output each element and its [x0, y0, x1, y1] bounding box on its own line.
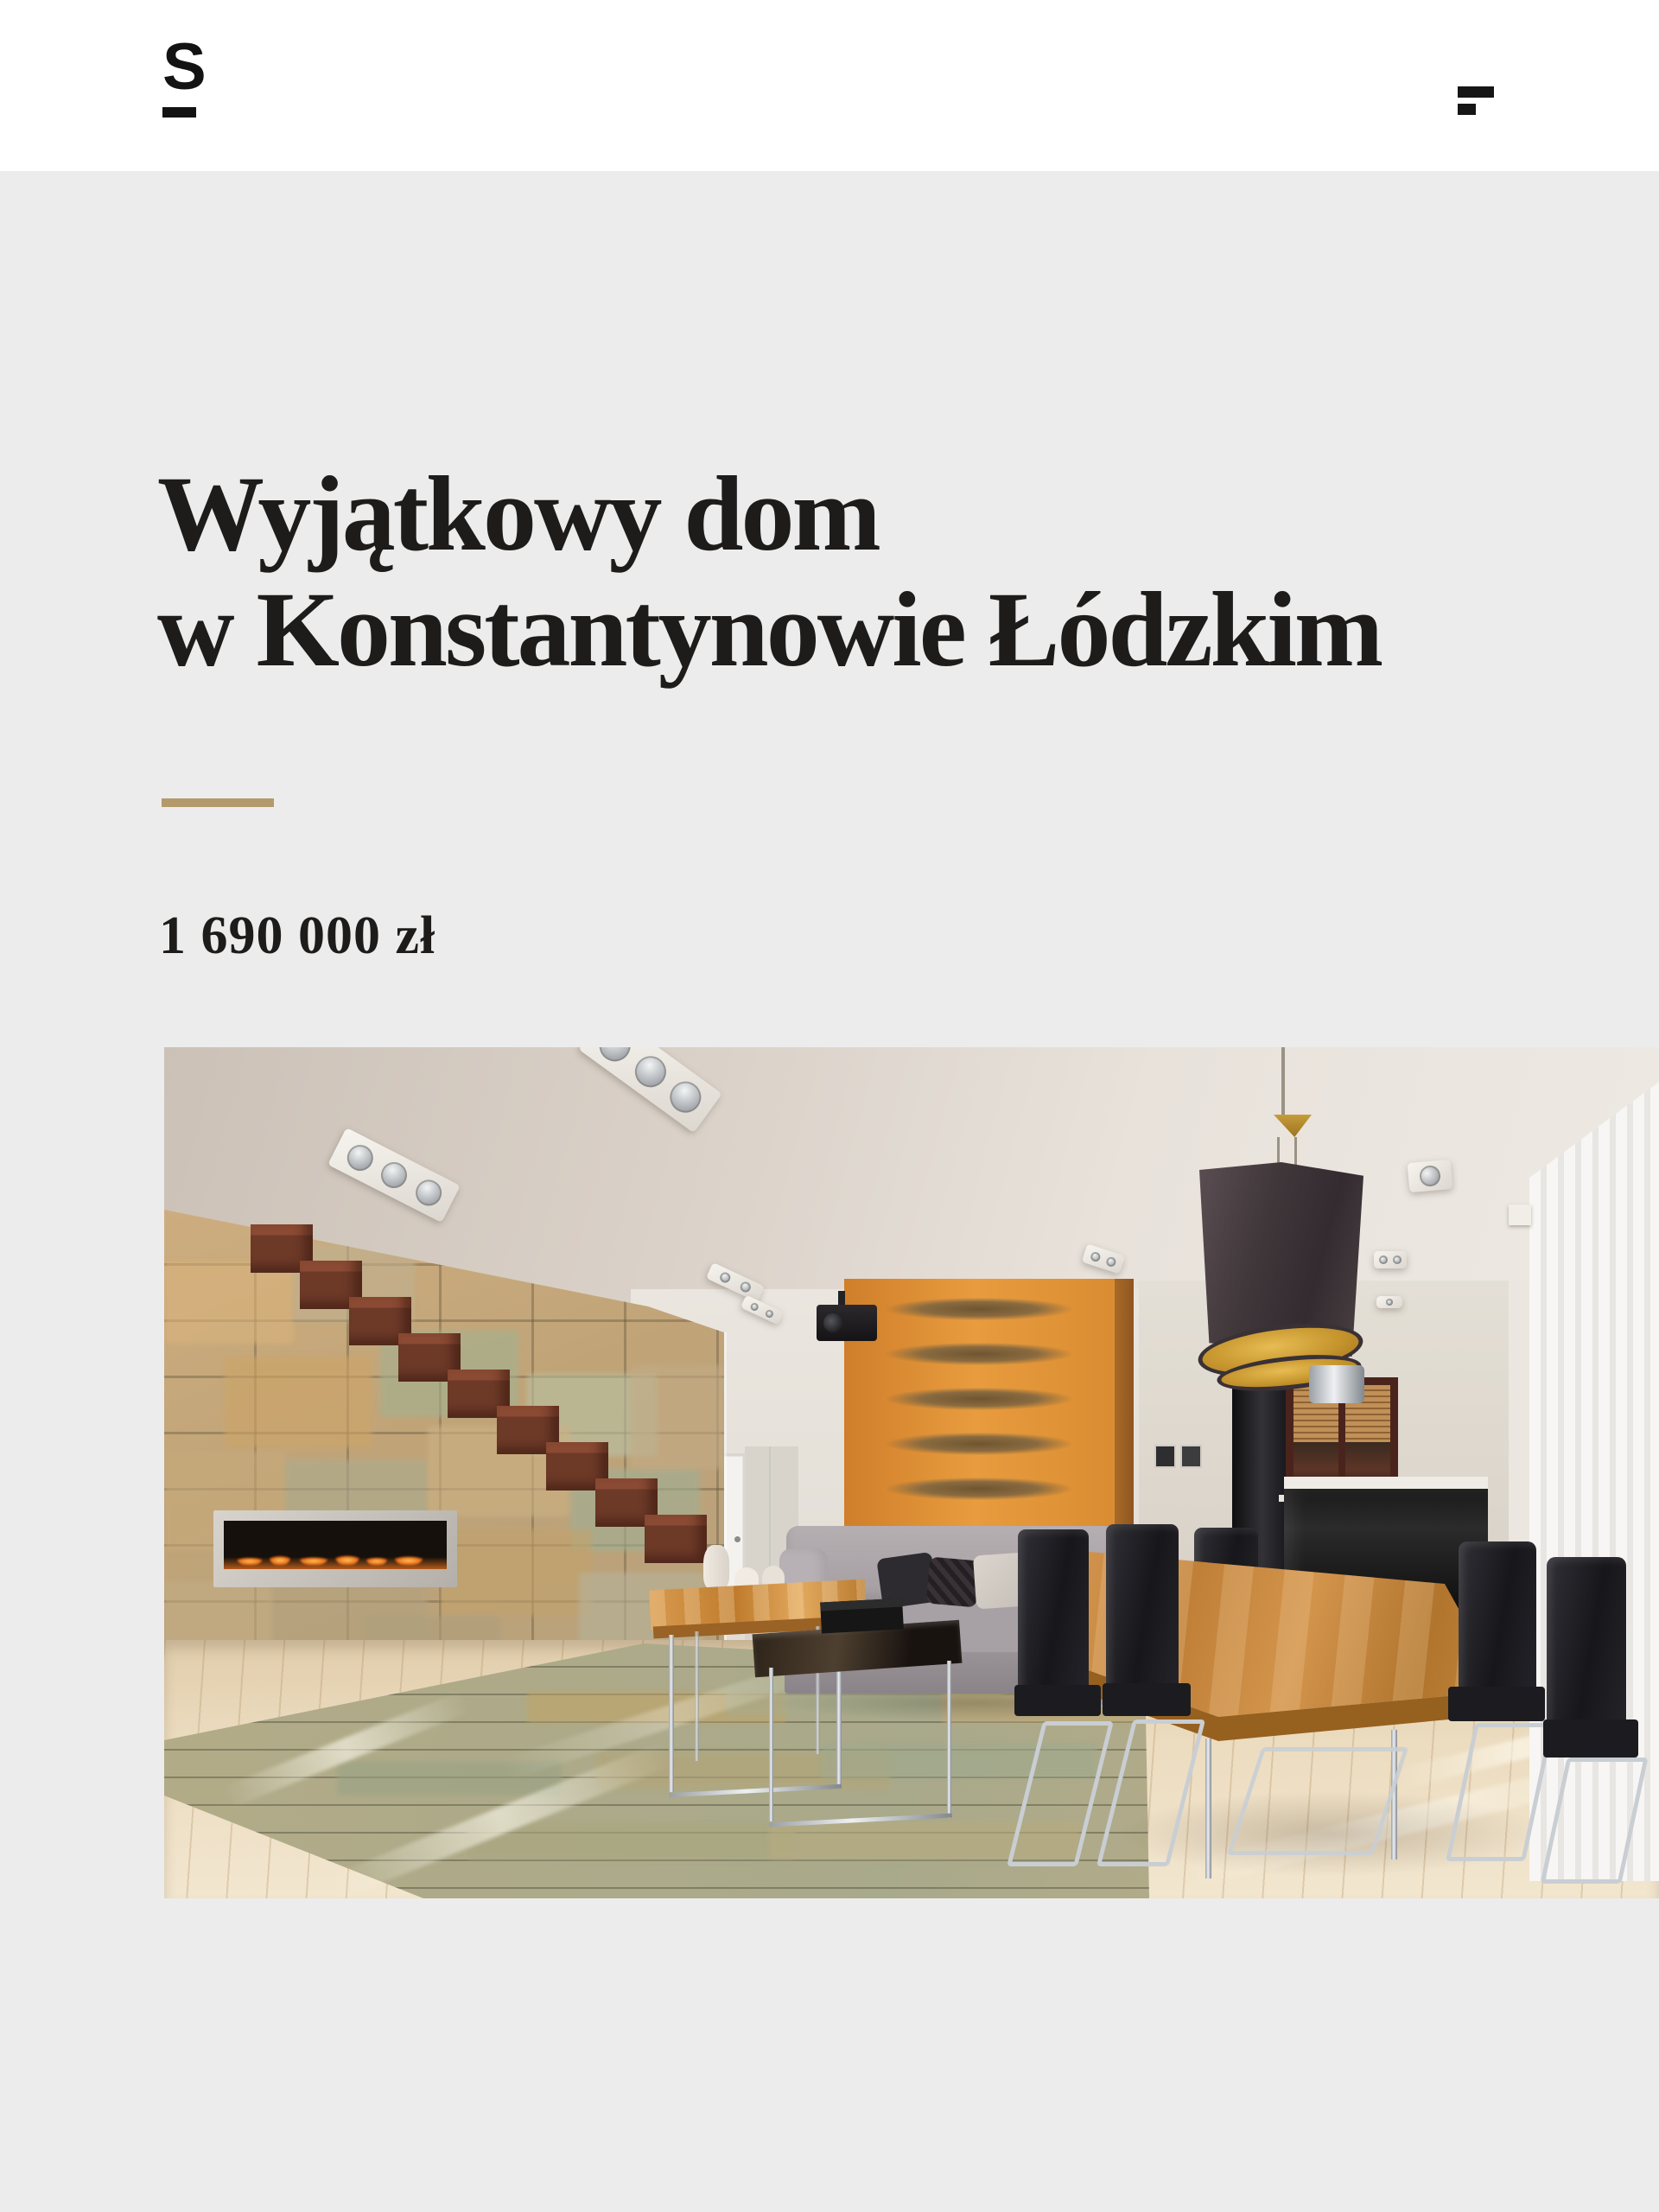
table-leg	[695, 1631, 699, 1761]
spotlight-bulb	[718, 1271, 732, 1285]
spotlight-bulb	[1393, 1255, 1402, 1264]
door-handle	[734, 1536, 741, 1542]
title-line-2: w Konstantynowie Łódzkim	[157, 572, 1381, 688]
pillow	[926, 1557, 980, 1608]
price-label: 1 690 000 zł	[159, 906, 435, 967]
stair-step	[645, 1515, 707, 1563]
dining-chair-back	[1018, 1529, 1089, 1689]
table-leg	[669, 1635, 674, 1792]
dining-chair-back	[1547, 1557, 1626, 1730]
table-leg	[1205, 1738, 1211, 1878]
ember-glow	[224, 1557, 447, 1569]
table-leg	[769, 1668, 773, 1821]
spotlight-bulb	[765, 1308, 775, 1319]
spotlight-bulb	[1419, 1165, 1441, 1187]
tissue-box	[820, 1599, 904, 1634]
lamp-cord	[1281, 1047, 1285, 1116]
slat-shape	[887, 1343, 1071, 1365]
stone-tile-patch	[164, 1262, 294, 1344]
spotlight-strip	[1082, 1243, 1126, 1274]
stone-tile-patch	[225, 1357, 372, 1447]
title-line-1: Wyjątkowy dom	[157, 456, 1381, 572]
spotlight-bulb	[410, 1175, 445, 1210]
table-leg	[947, 1661, 951, 1818]
light-switch	[1154, 1445, 1176, 1468]
spotlight-bulb	[1090, 1250, 1102, 1262]
accent-divider	[162, 798, 274, 807]
spotlight-bulb	[664, 1075, 707, 1118]
dining-chair-back	[1459, 1541, 1536, 1697]
logo-underline	[162, 107, 196, 118]
spotlight-bulb	[377, 1158, 411, 1192]
slat-shape	[887, 1433, 1071, 1455]
spotlight-strip	[327, 1128, 461, 1223]
slat-shape	[887, 1298, 1071, 1320]
slat-shape	[887, 1478, 1071, 1500]
dining-chair-seat	[1448, 1687, 1545, 1721]
spotlight-bulb	[342, 1141, 377, 1175]
spotlight-bulb	[739, 1281, 753, 1294]
dining-chair-seat	[1543, 1719, 1638, 1758]
page-title: Wyjątkowy dom w Konstantynowie Łódzkim	[157, 456, 1381, 688]
menu-bar-short	[1458, 104, 1476, 115]
spotlight-square	[1408, 1160, 1453, 1192]
dining-chair-seat	[1014, 1685, 1101, 1716]
spotlight-strip	[1374, 1251, 1407, 1268]
spotlight-bulb	[749, 1301, 760, 1312]
lamp-cord	[1277, 1137, 1280, 1166]
logo[interactable]: S	[162, 35, 207, 118]
property-photo[interactable]	[164, 1047, 1659, 1898]
spotlight-bulb	[1386, 1299, 1393, 1306]
dining-chair-back	[1106, 1524, 1179, 1688]
stone-tile-patch	[631, 1365, 724, 1469]
dining-chair-seat	[1103, 1683, 1191, 1716]
slat-wall-frame	[1115, 1279, 1134, 1531]
lamp-cylinder	[1309, 1365, 1364, 1403]
fireplace-opening	[224, 1521, 447, 1569]
wall-speaker	[1509, 1205, 1531, 1225]
spotlight-strip	[578, 1047, 721, 1133]
menu-bar-long	[1458, 86, 1494, 98]
orange-slat-wall	[844, 1279, 1134, 1531]
slat-shape	[887, 1388, 1071, 1410]
projector-lens	[823, 1313, 842, 1332]
hamburger-menu-icon[interactable]	[1458, 86, 1494, 115]
lamp-ornament	[1274, 1115, 1312, 1137]
vase	[703, 1545, 729, 1590]
lamp-cord	[1294, 1137, 1297, 1165]
spotlight-bulb	[628, 1050, 671, 1093]
top-bar: S	[0, 0, 1659, 171]
logo-letter: S	[162, 35, 207, 100]
spotlight-bulb	[1379, 1255, 1388, 1264]
spotlight-bulb	[1105, 1255, 1117, 1268]
kitchen-counter-top	[1284, 1477, 1488, 1489]
light-switch	[1180, 1445, 1202, 1468]
stone-tile-patch	[441, 1529, 592, 1616]
spotlight-strip	[1376, 1296, 1402, 1308]
spotlight-bulb	[594, 1047, 637, 1068]
